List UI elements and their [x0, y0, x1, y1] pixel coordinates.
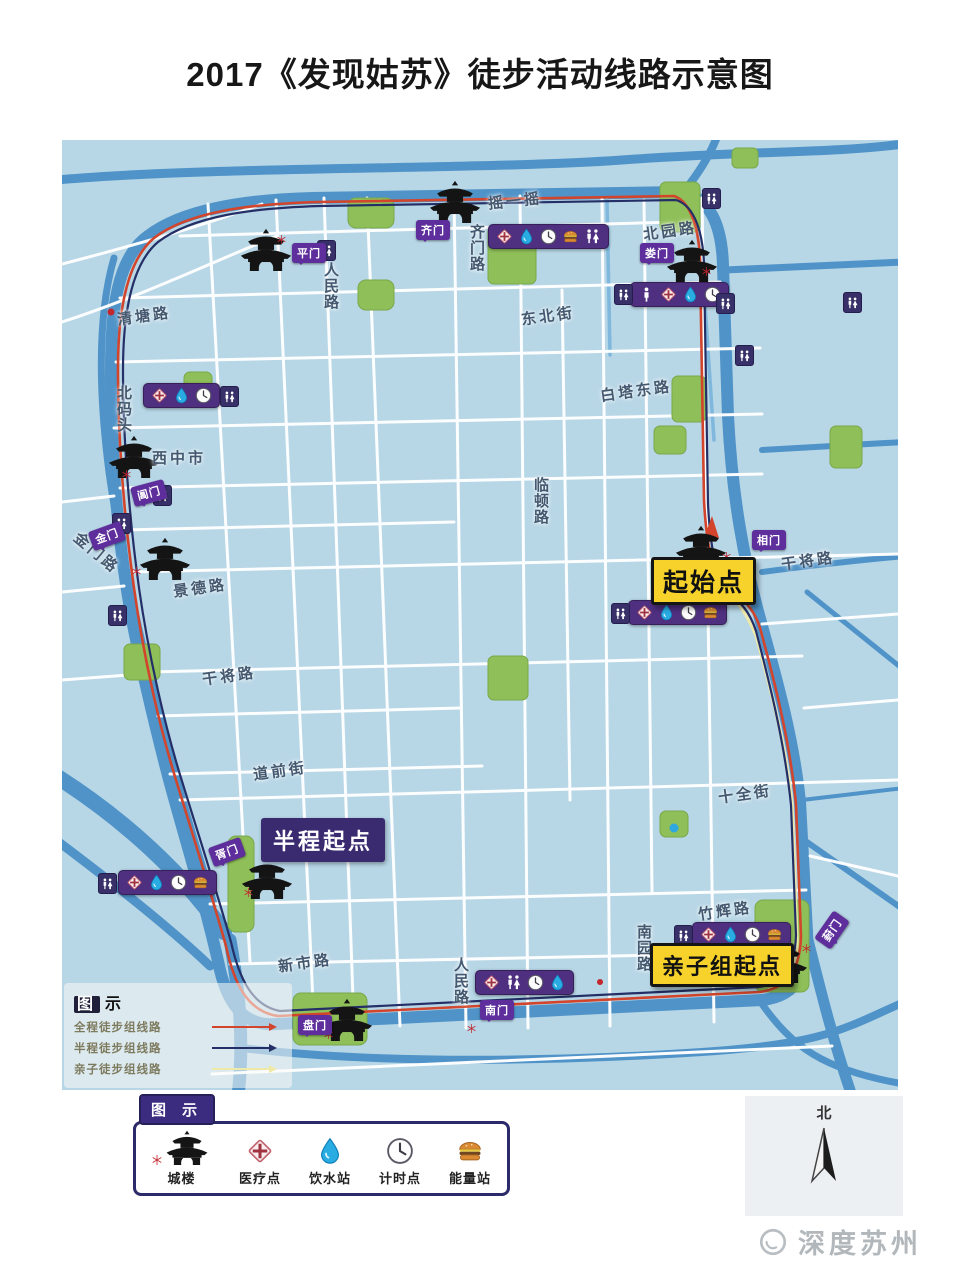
gate-label: 平门	[292, 243, 326, 263]
gate-label: 齐门	[416, 220, 450, 240]
road-label: 干将路	[780, 546, 836, 574]
poster-page: 2017《发现姑苏》徒步活动线路示意图	[0, 0, 960, 1280]
toilet-icon	[614, 284, 633, 305]
route-map: 清塘路北码头西中市金门路景德路干将路道前街新市路人民路人民路齐门路摇一摇东北街北…	[62, 140, 898, 1090]
medical-icon	[246, 1133, 274, 1165]
north-indicator: 北	[745, 1096, 903, 1216]
service-station	[488, 224, 609, 249]
route-legend-title: 图示	[74, 990, 282, 1014]
service-station	[143, 383, 220, 408]
toilet-icon	[108, 605, 127, 626]
toilet-icon	[611, 603, 630, 624]
gate-tower-icon	[136, 537, 194, 580]
legend-item-burger: 能量站	[449, 1133, 491, 1187]
route-legend-label: 全程徒步组线路	[74, 1019, 162, 1035]
star-icon	[277, 235, 286, 244]
gate-label: 金门	[88, 521, 127, 551]
road-label: 东北街	[520, 301, 576, 329]
legend-item-label: 城楼	[167, 1168, 195, 1187]
road-label: 清塘路	[116, 301, 172, 329]
toilet-icon	[220, 386, 239, 407]
route-legend-title-boxed: 图	[74, 996, 100, 1013]
legend-item-label: 能量站	[449, 1168, 491, 1187]
route-legend-row: 亲子徒步组线路	[74, 1061, 282, 1077]
road-label: 道前街	[252, 756, 308, 784]
road-label: 西中市	[152, 447, 206, 468]
road-label: 十全街	[717, 779, 773, 807]
gate-label: 娄门	[640, 243, 674, 263]
clock-icon	[386, 1133, 414, 1165]
road-label: 齐门路	[466, 224, 487, 272]
icon-legend: 图 示 城楼医疗点饮水站计时点能量站	[133, 1094, 510, 1196]
icon-legend-tab: 图 示	[139, 1094, 215, 1125]
road-label: 干将路	[201, 661, 257, 689]
start-point-marker: 起始点	[651, 557, 756, 605]
star-icon	[244, 888, 253, 897]
route-legend-label: 亲子徒步组线路	[74, 1061, 162, 1077]
road-label: 人民路	[320, 262, 341, 310]
toilet-icon	[843, 292, 862, 313]
gate-label: 葑门	[814, 910, 850, 949]
service-station	[630, 282, 729, 307]
star-icon	[702, 267, 711, 276]
watermark: 深度苏州	[757, 1222, 922, 1261]
road-label: 北码头	[113, 385, 134, 433]
gate-label: 南门	[480, 1000, 514, 1020]
gate-tower-icon	[237, 228, 295, 271]
watermark-text: 深度苏州	[798, 1222, 922, 1261]
service-station	[118, 870, 217, 895]
pagoda-icon	[152, 1133, 211, 1165]
gate-label: 相门	[752, 530, 786, 550]
road-label: 摇一摇	[487, 187, 543, 214]
route-legend-row: 全程徒步组线路	[74, 1019, 282, 1035]
legend-item-label: 计时点	[379, 1168, 421, 1187]
route-legend-label: 半程徒步组线路	[74, 1040, 162, 1056]
gate-tower-icon	[426, 180, 484, 223]
star-icon	[122, 470, 131, 479]
star-icon	[467, 1024, 476, 1033]
north-label: 北	[816, 1102, 831, 1123]
road-label: 临顿路	[530, 477, 551, 525]
legend-item-clock: 计时点	[379, 1133, 421, 1187]
star-icon	[802, 944, 811, 953]
route-legend-title-rest: 示	[105, 996, 125, 1013]
road-label: 白塔东路	[599, 375, 673, 406]
watermark-logo-icon	[757, 1226, 789, 1258]
burger-icon	[456, 1133, 484, 1165]
gate-label: 盘门	[298, 1015, 332, 1035]
road-label: 竹辉路	[697, 896, 753, 924]
road-label: 人民路	[450, 957, 471, 1005]
road-label: 新市路	[277, 948, 333, 976]
water-icon	[316, 1133, 344, 1165]
toilet-icon	[735, 345, 754, 366]
toilet-icon	[98, 873, 117, 894]
legend-item-label: 饮水站	[309, 1168, 351, 1187]
icon-legend-box: 城楼医疗点饮水站计时点能量站	[133, 1121, 510, 1196]
route-legend: 图示 全程徒步组线路半程徒步组线路亲子徒步组线路	[64, 983, 292, 1088]
legend-item-water: 饮水站	[309, 1133, 351, 1187]
service-station	[475, 970, 574, 995]
route-arrow-icon	[212, 1047, 274, 1049]
north-arrow-icon	[804, 1123, 844, 1189]
route-legend-row: 半程徒步组线路	[74, 1040, 282, 1056]
route-arrow-icon	[212, 1068, 274, 1070]
toilet-icon	[702, 188, 721, 209]
route-arrow-icon	[212, 1026, 274, 1028]
star-icon	[132, 567, 141, 576]
page-title: 2017《发现姑苏》徒步活动线路示意图	[0, 48, 960, 96]
legend-item-medical: 医疗点	[239, 1133, 281, 1187]
half-start-marker: 半程起点	[261, 818, 385, 862]
legend-item-label: 医疗点	[239, 1168, 281, 1187]
family-start-marker: 亲子组起点	[650, 943, 794, 987]
toilet-icon	[716, 293, 735, 314]
legend-item-pagoda: 城楼	[152, 1133, 211, 1187]
